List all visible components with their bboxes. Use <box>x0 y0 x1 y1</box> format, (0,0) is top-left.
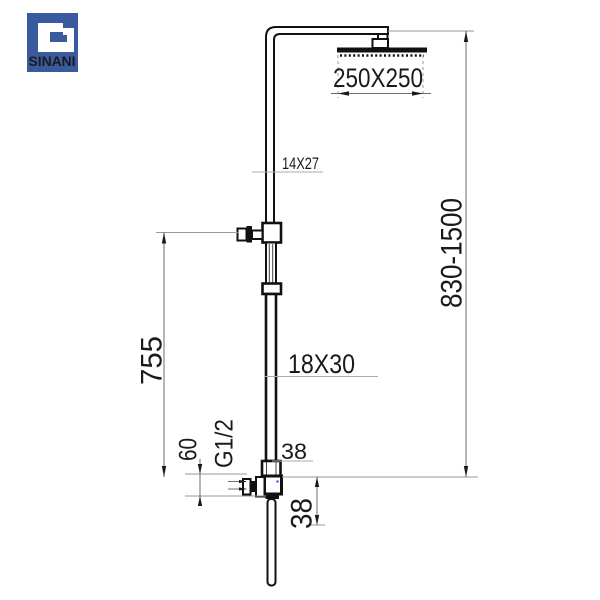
arrow-up-icon <box>162 233 166 244</box>
riser-tube-and-arm <box>266 27 388 225</box>
label-lower-tube-group: 18X30 <box>265 349 378 379</box>
hand-shower-wand <box>268 499 276 586</box>
technical-drawing-page: SINANI 250X250 14X27 18X30 <box>0 0 600 600</box>
dim-head-size: 250X250 <box>331 55 431 98</box>
label-height-range: 830-1500 <box>436 198 469 308</box>
label-offset-bottom: 38 <box>286 498 319 529</box>
label-inlet-offset: 60 <box>175 438 203 461</box>
valve-handle-flange <box>256 477 265 497</box>
arrow-up-icon <box>464 31 468 42</box>
arrow-down-icon <box>162 466 166 477</box>
brand-logo: SINANI <box>27 13 78 72</box>
label-offset-top: 38 <box>281 439 307 464</box>
label-thread: G1/2 <box>211 419 239 468</box>
lower-tube <box>266 294 276 461</box>
arrow-down-icon <box>464 466 468 477</box>
arrow-up-icon <box>198 496 202 506</box>
mid-connector <box>263 284 282 295</box>
arrow-down-icon <box>198 464 202 474</box>
label-riser-height: 755 <box>136 336 169 385</box>
dim-offset-bottom: 38 <box>286 477 326 529</box>
valve-mark-dot <box>276 480 278 482</box>
arrow-up-icon <box>315 477 319 487</box>
brand-name: SINANI <box>29 54 76 69</box>
g-mark-counter <box>58 35 67 42</box>
mixer-valve-body <box>265 476 282 494</box>
valve-sleeve <box>262 461 281 476</box>
dim-height-range: 830-1500 <box>282 31 478 477</box>
mid-tube <box>266 243 276 284</box>
shower-head <box>337 48 427 53</box>
bracket-stem <box>252 231 263 240</box>
label-upper-tube-section: 14X27 <box>282 154 319 173</box>
head-swivel-connector <box>373 39 389 48</box>
slider-block <box>263 223 282 243</box>
dim-thread: G1/2 <box>211 419 248 491</box>
drawing-canvas: SINANI 250X250 14X27 18X30 <box>0 0 600 600</box>
label-head-size: 250X250 <box>333 63 423 93</box>
bracket-knob <box>238 229 247 241</box>
label-lower-tube-section: 18X30 <box>288 349 355 379</box>
label-upper-tube-group: 14X27 <box>252 154 323 173</box>
